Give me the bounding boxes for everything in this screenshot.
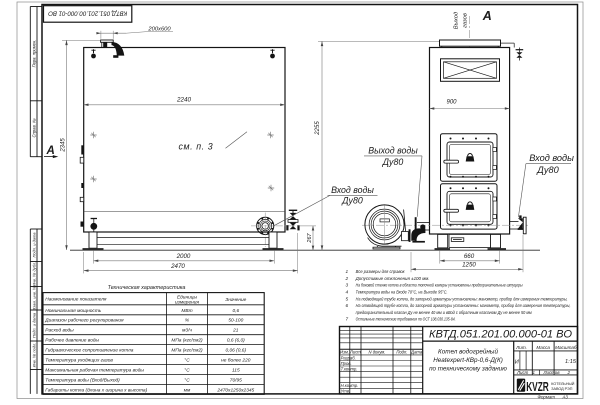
svg-text:°С: °С	[184, 377, 190, 383]
svg-text:На боковой стенке котла в обла: На боковой стенке котла в области топочн…	[356, 282, 523, 288]
svg-text:Значение: Значение	[225, 297, 246, 303]
svg-text:Ду80: Ду80	[341, 196, 363, 206]
svg-text:На отводящей трубе котла, до з: На отводящей трубе котла, до запорной ар…	[356, 302, 571, 308]
svg-text:МПа (кгс/см2): МПа (кгс/см2)	[171, 348, 203, 354]
svg-text:Перв. примен.: Перв. примен.	[32, 40, 37, 68]
svg-text:Рабочее давление воды: Рабочее давление воды	[45, 338, 99, 344]
svg-text:°С: °С	[184, 368, 190, 374]
svg-text:Справ. №: Справ. №	[32, 118, 37, 137]
svg-text:КОТЕЛЬНЫЙ: КОТЕЛЬНЫЙ	[551, 382, 574, 386]
svg-text:по техническому заданию: по техническому заданию	[429, 364, 507, 372]
svg-text:ЗАВОД РЭП: ЗАВОД РЭП	[551, 387, 572, 391]
svg-text:Все размеры для справок: Все размеры для справок	[356, 269, 406, 274]
svg-text:Дата: Дата	[410, 350, 423, 355]
svg-text:Инв. № дубл.: Инв. № дубл.	[32, 262, 37, 287]
svg-text:газов: газов	[462, 13, 468, 28]
svg-text:Ду80: Ду80	[382, 157, 404, 167]
svg-text:2240: 2240	[176, 97, 192, 104]
svg-text:Подп. и дата: Подп. и дата	[32, 232, 37, 258]
svg-text:70/95: 70/95	[230, 377, 242, 383]
svg-text:Подп. и дата: Подп. и дата	[32, 312, 37, 338]
svg-text:Диапазон рабочего регулировани: Диапазон рабочего регулирования	[44, 318, 124, 324]
svg-text:°С: °С	[184, 358, 190, 364]
svg-text:Инв. № подл.: Инв. № подл.	[32, 343, 37, 368]
svg-text:предохранительный клапан Ду не: предохранительный клапан Ду не менее 40 …	[356, 309, 533, 315]
svg-text:измерения: измерения	[175, 301, 199, 306]
svg-text:Остальные технические требован: Остальные технические требования по ОСТ …	[356, 317, 456, 322]
svg-text:Утв.: Утв.	[341, 389, 351, 394]
svg-text:Разраб.: Разраб.	[341, 355, 356, 360]
svg-text:Формат: Формат	[538, 394, 556, 399]
svg-text:Изм.: Изм.	[340, 350, 349, 355]
svg-text:Температура воды (Вход/Выход): Температура воды (Вход/Выход)	[45, 377, 120, 383]
svg-text:Подп.: Подп.	[396, 350, 407, 355]
svg-text:Единицы: Единицы	[177, 294, 198, 300]
svg-text:3: 3	[346, 283, 349, 288]
svg-text:Лист: Лист	[349, 350, 361, 355]
svg-text:И: И	[515, 360, 519, 366]
svg-text:Температура воды на Входе 70°С: Температура воды на Входе 70°С, на Выход…	[356, 290, 448, 295]
svg-text:1250: 1250	[462, 262, 476, 269]
svg-text:Heatexpert-КВр-0,6-Д(К): Heatexpert-КВр-0,6-Д(К)	[433, 357, 503, 364]
svg-text:Вход воды: Вход воды	[529, 153, 574, 163]
svg-text:Лит.: Лит.	[515, 345, 527, 350]
svg-text:7: 7	[346, 317, 349, 322]
svg-text:см. п. 3: см. п. 3	[179, 142, 214, 152]
svg-text:Взам. инв. №: Взам. инв. №	[32, 285, 37, 310]
svg-text:200х600: 200х600	[147, 27, 171, 33]
svg-text:2000: 2000	[176, 253, 191, 260]
svg-text:КВТД.051.201.00.000-01 ВО: КВТД.051.201.00.000-01 ВО	[48, 10, 128, 17]
svg-text:Номинальная мощность: Номинальная мощность	[45, 308, 102, 314]
svg-text:Масса: Масса	[536, 345, 550, 350]
svg-text:МВт: МВт	[181, 308, 192, 314]
svg-text:2: 2	[567, 370, 571, 375]
svg-text:мм: мм	[184, 388, 191, 393]
svg-text:0,6: 0,6	[232, 308, 239, 314]
svg-text:А3: А3	[562, 394, 569, 399]
svg-text:Вход воды: Вход воды	[331, 185, 374, 195]
svg-text:Масштаб: Масштаб	[555, 345, 577, 350]
svg-text:267: 267	[307, 232, 313, 243]
svg-text:Габариты котла (длина х ширина: Габариты котла (длина х ширина х высота)	[45, 387, 147, 393]
svg-text:МПа (кгс/см2): МПа (кгс/см2)	[171, 338, 203, 344]
svg-text:1: 1	[346, 269, 349, 274]
svg-text:0,6 (6,0): 0,6 (6,0)	[227, 338, 245, 344]
svg-text:КВТД.051.201.00.000-01 ВО: КВТД.051.201.00.000-01 ВО	[429, 328, 572, 340]
svg-text:21: 21	[232, 328, 239, 334]
svg-text:5: 5	[346, 296, 349, 301]
svg-text:Выход: Выход	[454, 11, 460, 29]
svg-text:2470х1250х2345: 2470х1250х2345	[216, 387, 254, 393]
svg-text:4: 4	[346, 290, 349, 295]
svg-text:Техническая характеристика: Техническая характеристика	[108, 285, 186, 291]
svg-text:Допустимые отклонения ±100 мм.: Допустимые отклонения ±100 мм.	[355, 276, 430, 281]
svg-text:Котел водогрейный: Котел водогрейный	[438, 348, 498, 356]
svg-text:900: 900	[446, 100, 457, 106]
svg-text:1:15: 1:15	[565, 359, 577, 365]
svg-text:Наименование показателя: Наименование показателя	[45, 297, 107, 303]
svg-text:50-100: 50-100	[228, 318, 243, 324]
svg-text:Выход воды: Выход воды	[368, 146, 418, 156]
svg-text:Температура уходящих газов: Температура уходящих газов	[45, 358, 113, 364]
svg-text:Т.контр.: Т.контр.	[341, 366, 358, 371]
svg-text:не более 220: не более 220	[221, 358, 251, 364]
svg-text:N докум.: N докум.	[369, 350, 386, 355]
svg-text:Расход воды: Расход воды	[45, 328, 74, 334]
svg-text:6: 6	[346, 303, 349, 308]
svg-text:Гидравлическое сопротивление к: Гидравлическое сопротивление котла	[45, 348, 133, 354]
svg-text:%: %	[185, 318, 190, 324]
svg-text:2: 2	[345, 276, 349, 281]
svg-text:м3/ч: м3/ч	[182, 328, 192, 334]
svg-text:2470: 2470	[170, 263, 185, 270]
svg-text:0,06 (0,6): 0,06 (0,6)	[226, 348, 247, 354]
svg-text:2345: 2345	[61, 138, 67, 153]
svg-text:Листов: Листов	[543, 370, 561, 375]
svg-text:А: А	[482, 9, 492, 23]
svg-text:На подводящей трубе котла, до: На подводящей трубе котла, до запорной а…	[356, 295, 568, 301]
svg-text:2255: 2255	[315, 121, 321, 136]
svg-text:Пров.: Пров.	[341, 361, 352, 366]
svg-text:Лист: Лист	[516, 370, 529, 375]
svg-text:Ду80: Ду80	[536, 165, 559, 175]
svg-text:Н.контр.: Н.контр.	[341, 383, 359, 388]
svg-text:KVZR: KVZR	[526, 379, 549, 394]
svg-text:Максимальная рабочая температу: Максимальная рабочая температура воды	[45, 368, 144, 374]
svg-text:115: 115	[232, 368, 240, 374]
svg-text:660: 660	[464, 253, 475, 260]
